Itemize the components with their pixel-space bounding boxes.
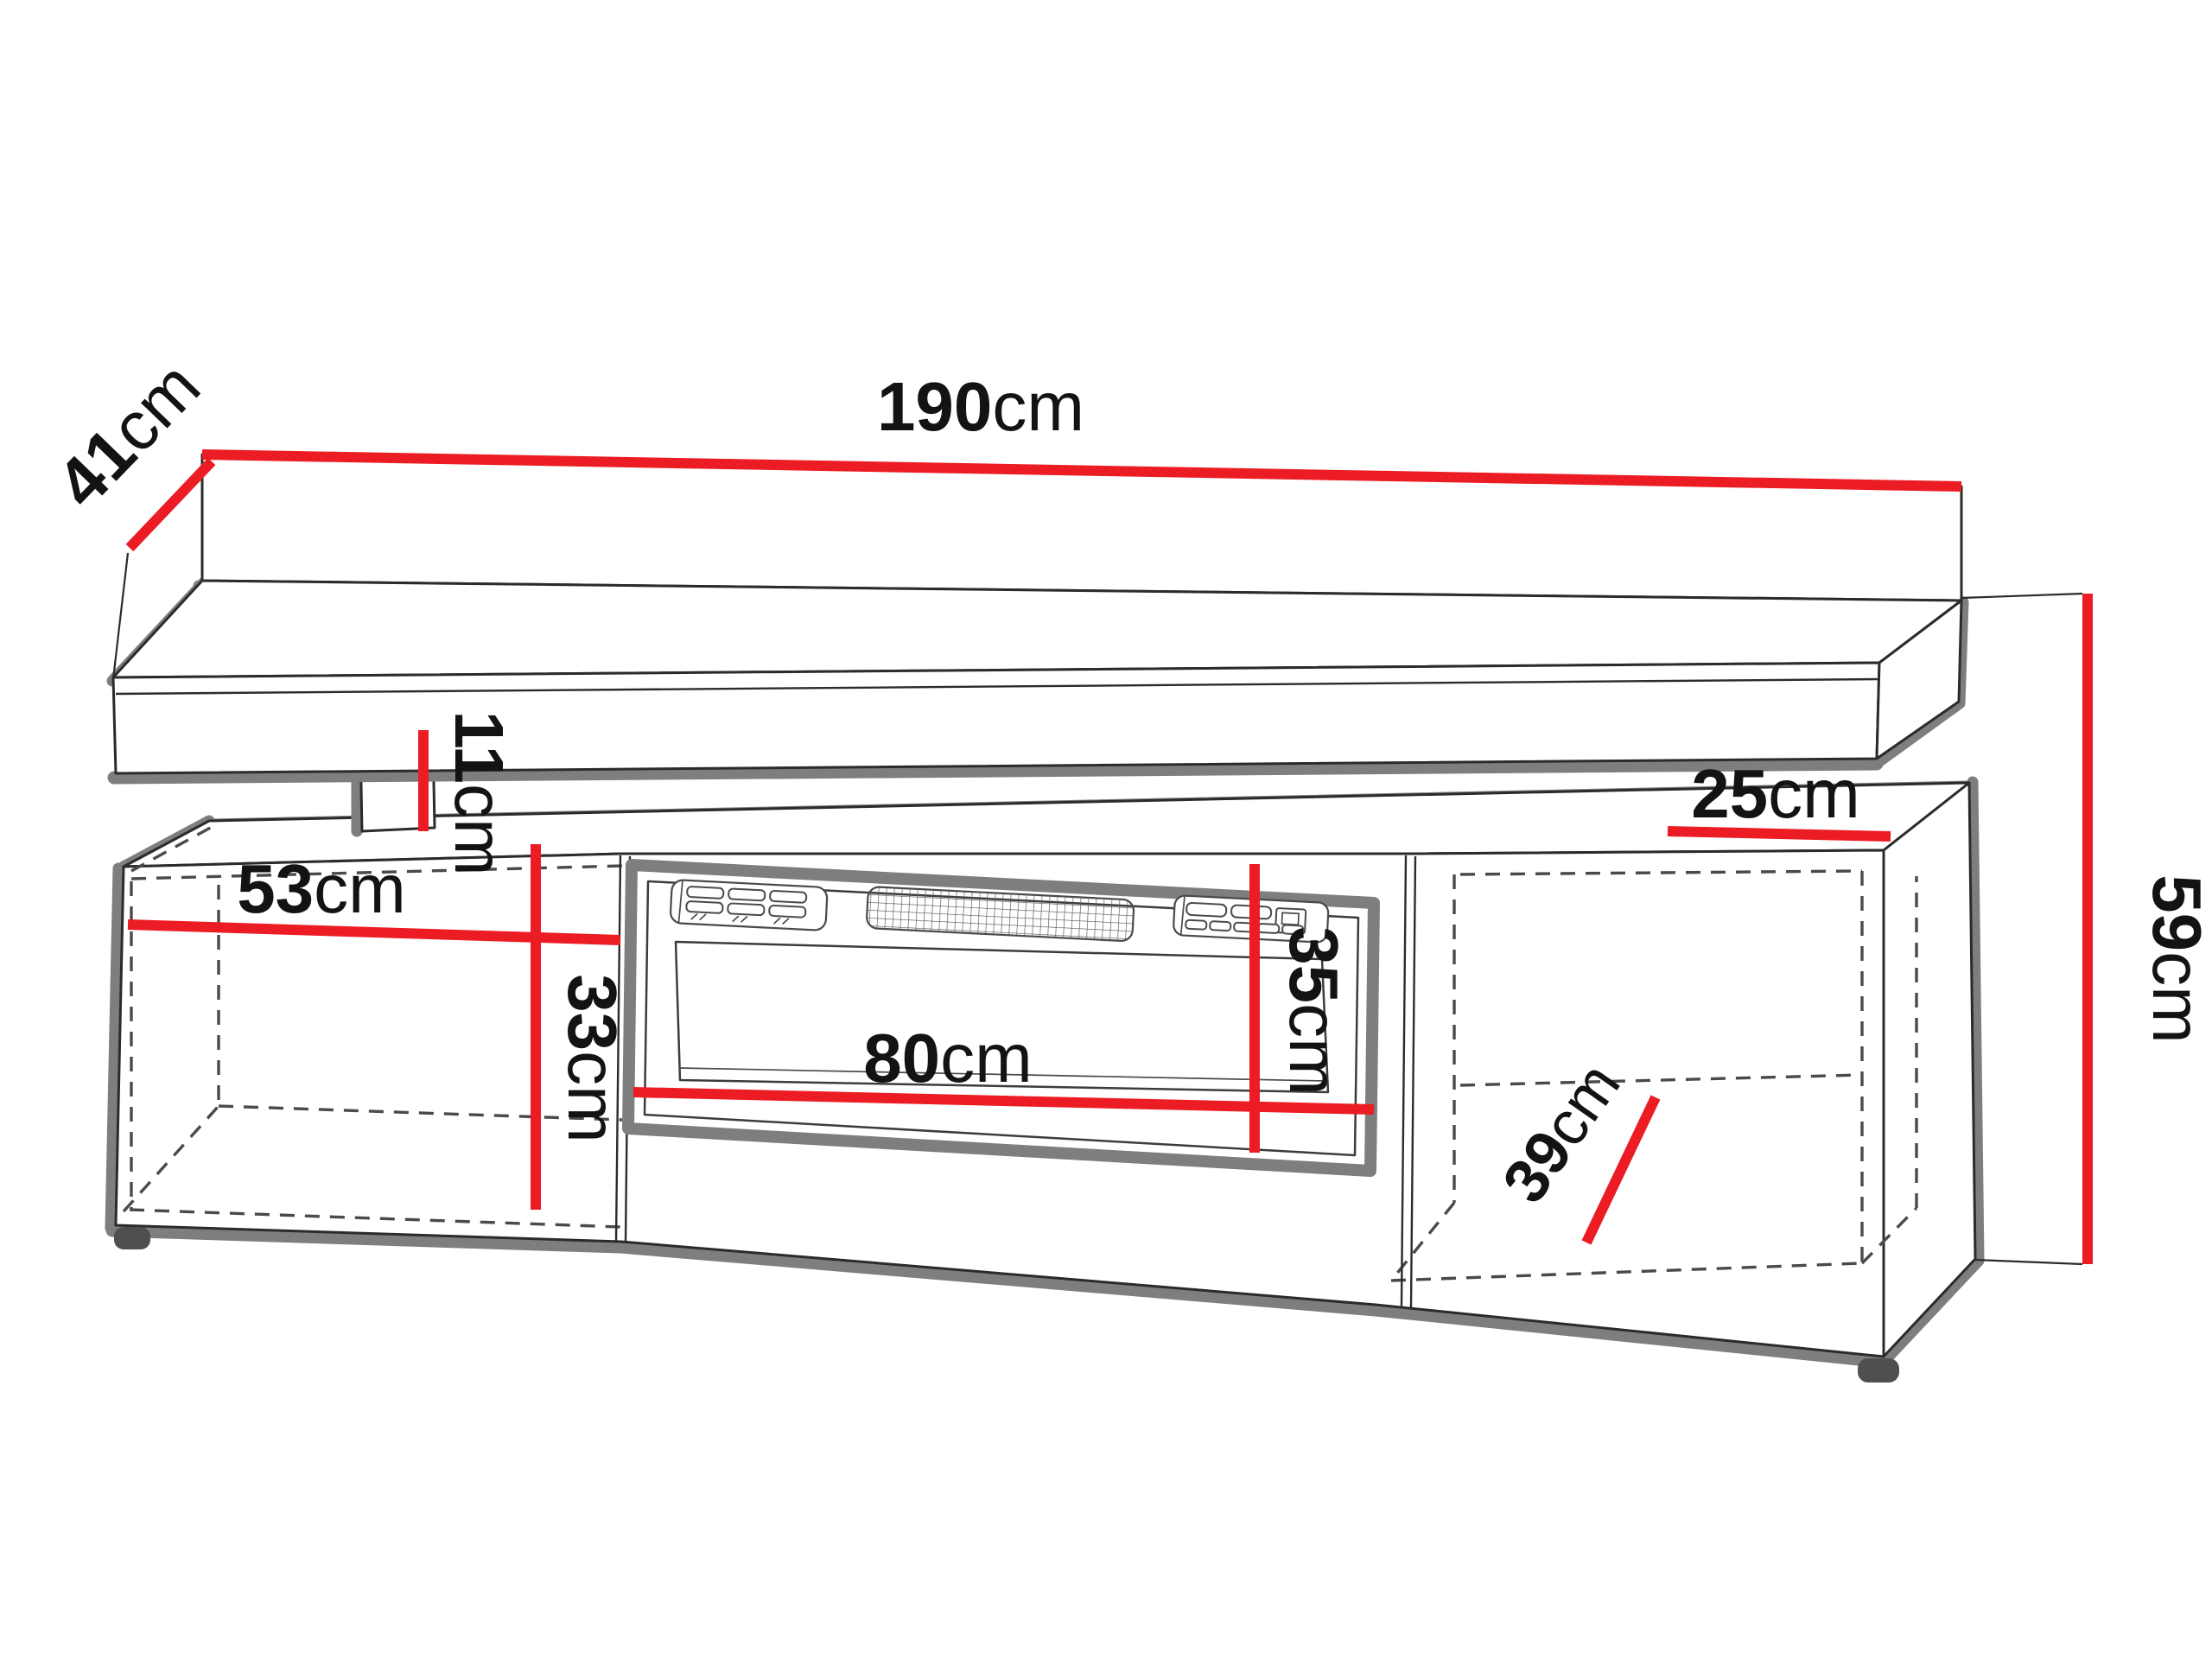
shelf-back-panel [202, 454, 1961, 601]
floating-wall-shelf [112, 454, 1963, 778]
cabinet-foot-right [1858, 1358, 1899, 1382]
dim-label-total-height: 59cm [2139, 874, 2212, 1044]
fireplace-left-vent [670, 880, 827, 931]
dim-label-left-compartment-height: 33cm [554, 974, 631, 1143]
dim-label-gap-height: 11cm [441, 710, 518, 875]
dim-label-shelf-width: 190cm [877, 368, 1084, 445]
dim-label-fireplace-width: 80cm [863, 1020, 1033, 1096]
cabinet-foot-left [114, 1227, 150, 1249]
ext-line-total-height-bottom [1975, 1260, 2082, 1264]
furniture-dimension-diagram: 190cm 41cm 11cm 53cm 33cm 80cm 35cm 25cm… [0, 0, 2212, 1659]
fireplace-insert [628, 865, 1374, 1171]
shelf-front-apron [113, 663, 1879, 773]
ext-line-total-height-top [1961, 594, 2082, 598]
cabinet-right-end-panel [1884, 783, 1975, 1357]
dim-label-left-compartment-width: 53cm [237, 850, 406, 927]
dim-label-right-top-depth: 25cm [1691, 755, 1860, 832]
dim-label-shelf-depth: 41cm [41, 347, 214, 523]
dim-label-fireplace-height: 35cm [1275, 926, 1352, 1096]
